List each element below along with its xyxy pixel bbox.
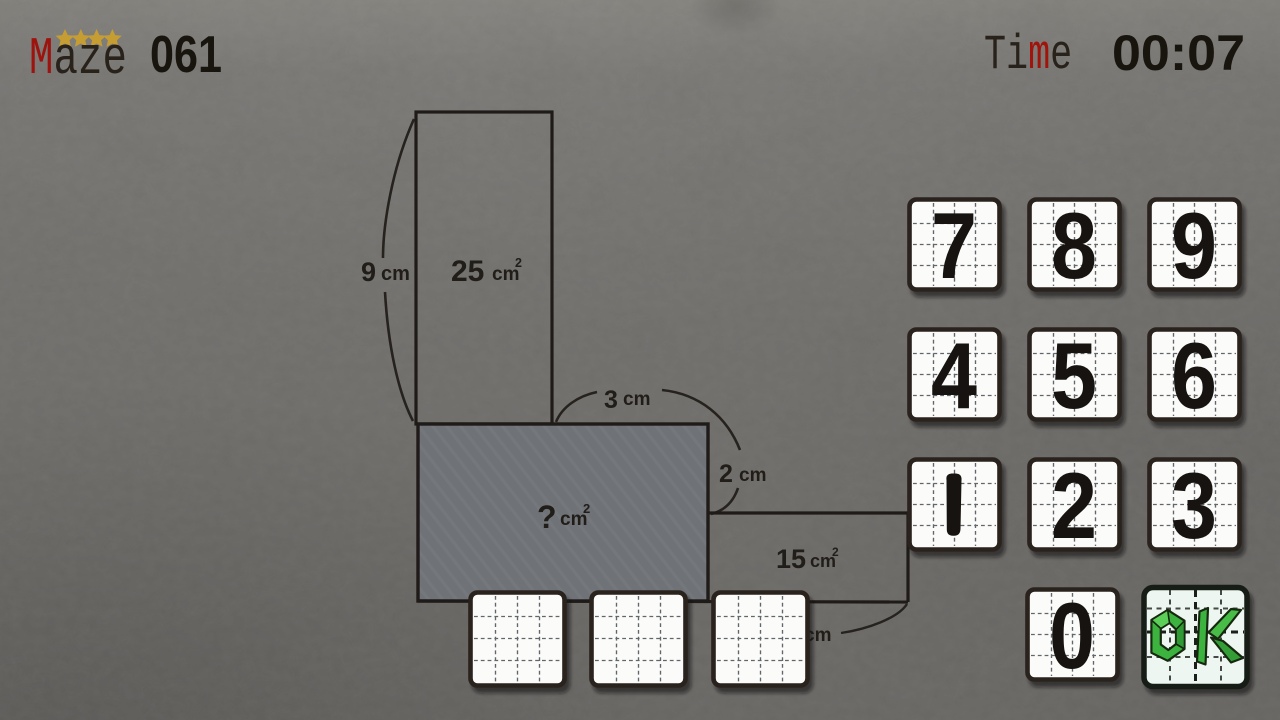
svg-text:5: 5 [1051, 323, 1097, 428]
svg-text:2: 2 [583, 501, 590, 516]
svg-text:Time: Time [984, 28, 1072, 83]
svg-text:0: 0 [1049, 583, 1095, 688]
svg-text:cm: cm [623, 389, 650, 410]
svg-text:9: 9 [361, 257, 376, 287]
svg-text:2: 2 [1051, 453, 1097, 558]
svg-text:00:07: 00:07 [1112, 25, 1245, 81]
svg-text:7: 7 [931, 193, 977, 298]
svg-text:cm: cm [381, 263, 410, 285]
svg-text:8: 8 [1051, 193, 1097, 298]
svg-text:3: 3 [1171, 453, 1217, 558]
svg-text:Maze: Maze [29, 30, 127, 89]
svg-text:3: 3 [604, 386, 618, 414]
svg-text:4: 4 [931, 323, 977, 428]
svg-text:15: 15 [776, 544, 806, 574]
svg-text:9: 9 [1171, 193, 1217, 298]
svg-text:?: ? [537, 499, 557, 535]
svg-text:2: 2 [832, 545, 839, 559]
svg-text:061: 061 [150, 26, 222, 84]
svg-text:6: 6 [1171, 323, 1217, 428]
svg-text:cm: cm [739, 465, 766, 486]
svg-text:2: 2 [719, 460, 733, 488]
svg-text:25: 25 [451, 255, 484, 288]
svg-text:2: 2 [515, 256, 522, 270]
